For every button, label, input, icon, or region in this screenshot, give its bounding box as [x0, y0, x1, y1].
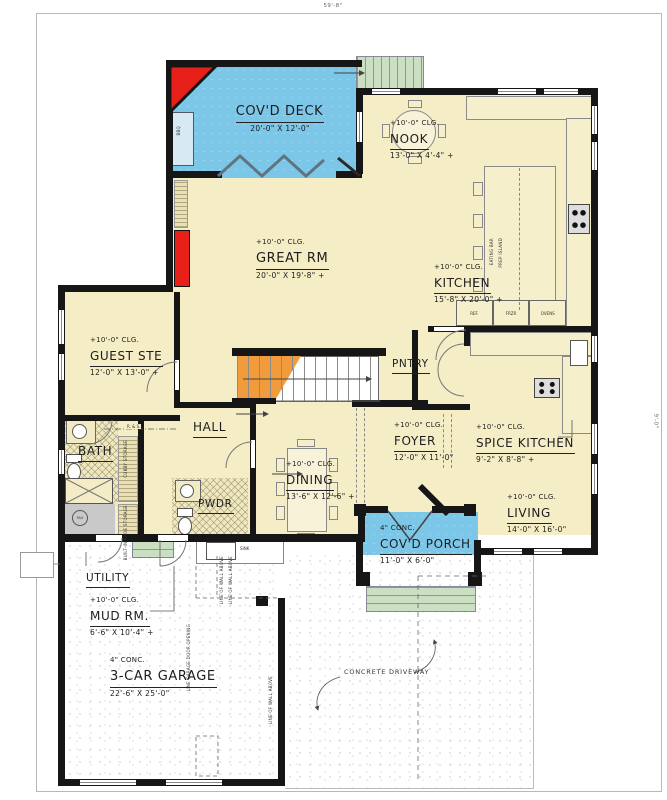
wall [174, 292, 180, 408]
window [498, 89, 536, 94]
cubby-storage-label: CUBBY STORAGE [123, 440, 128, 478]
ovens-label: OVENS [529, 300, 566, 326]
room-label-pwdr: PWDR [198, 492, 234, 514]
garage-door-opening [80, 780, 136, 785]
shower-icon [65, 478, 113, 504]
room-label-kitchen: +10'-0" CLG. KITCHEN 15'-8" X 20'-0" + [434, 263, 503, 304]
toilet-icon [178, 517, 192, 535]
window [592, 106, 597, 134]
wall [58, 415, 180, 421]
room-label-great-rm: +10'-0" CLG. GREAT RM 20'-0" X 19'-8" + [256, 238, 329, 281]
rod-shelf-label: R. & S. [126, 424, 141, 429]
wall [474, 540, 481, 586]
wall [356, 540, 363, 586]
porch-pier [354, 504, 366, 516]
wall [278, 598, 285, 785]
room-label-spice-kitchen: +10'-0" CLG. SPICE KITCHEN 9'-2" X 8'-8"… [476, 423, 575, 464]
porch-pier [464, 504, 476, 516]
wall [352, 400, 428, 407]
window [494, 549, 522, 554]
room-label-mud-rm: +10'-0" CLG. MUD RM. 6'-6" X 10'-4" + [90, 596, 154, 637]
fau-icon: FAU [72, 510, 88, 526]
floor-plan: 59'-8" 9'-0" [0, 0, 667, 800]
door-gap [158, 535, 188, 541]
wall [166, 171, 173, 292]
toilet-tank [177, 508, 193, 517]
wall [232, 348, 386, 356]
shoe-storage [118, 504, 138, 536]
wall [166, 60, 362, 67]
room-label-living: +10'-0" CLG. LIVING 14'-0" X 16'-0" [507, 493, 566, 534]
garage-door-opening [166, 780, 222, 785]
wall [250, 402, 256, 538]
wall [232, 398, 276, 404]
wall [366, 506, 388, 513]
room-label-dining: +10'-0" CLG. DINING 13'-6" X 12'-6" + [286, 460, 355, 501]
fireplace-icon [174, 230, 190, 287]
porch-steps [366, 586, 476, 612]
door-gap [175, 360, 179, 390]
driveway-label: CONCRETE DRIVEWAY [344, 668, 429, 676]
window [592, 424, 597, 454]
wall [58, 538, 65, 786]
window [544, 89, 578, 94]
line-of-wall-above-label: LINE OF WALL ABOVE [219, 556, 224, 604]
cubby-storage [118, 436, 138, 502]
room-label-nook: +10'-0" CLG. NOOK 13'-0" X 4'-4" + [390, 119, 454, 160]
window [59, 310, 64, 344]
room-label-foyer: +10'-0" CLG. FOYER 12'-0" X 11'-0" [394, 421, 453, 462]
wall [166, 171, 222, 178]
door-gap [251, 440, 255, 468]
island-centerline [519, 168, 520, 310]
window [59, 354, 64, 380]
room-label-pntry: PNTRY [392, 352, 430, 374]
wall [58, 285, 173, 292]
room-label-hall: HALL [193, 416, 227, 438]
room-label-utility: UTILITY [86, 566, 130, 588]
column-line [364, 408, 365, 508]
eating-bar-label: EATING BAR [489, 238, 494, 265]
top-dimension: 59'-8" [300, 3, 366, 9]
mud-bench [132, 540, 174, 558]
window [534, 549, 562, 554]
wall-post [256, 596, 268, 606]
door-gap [434, 327, 464, 331]
downspout-box [20, 552, 54, 578]
window [592, 142, 597, 170]
shoe-storage-label: BUILT-IN SHOE STORAGE [123, 505, 128, 560]
room-label-bath: BATH [78, 440, 113, 462]
cooktop-icon [534, 378, 560, 398]
sink-label: SINK [240, 546, 249, 551]
window [357, 112, 362, 142]
wall [432, 506, 466, 513]
cooktop-icon [568, 204, 590, 234]
kitchen-counter [466, 96, 592, 120]
room-label-covd-deck: COV'D DECK 20'-0" X 12'-0" [220, 100, 340, 134]
line-of-wall-above-label: LINE OF WALL ABOVE [268, 676, 273, 724]
window [59, 450, 64, 474]
wall [138, 420, 144, 538]
wall [166, 60, 173, 178]
right-dimension: 9'-0" [653, 413, 659, 428]
window [592, 336, 597, 362]
bbq-label: BBQ [176, 126, 181, 136]
column-line [356, 408, 357, 508]
sink-icon [180, 484, 194, 498]
sink-icon [570, 340, 588, 366]
sink-icon [72, 424, 87, 439]
built-in-shelves [174, 180, 188, 228]
door-gap [372, 89, 400, 94]
room-label-covd-porch: 4" CONC. COV'D PORCH 11'-0" X 6'-0" [380, 524, 472, 565]
room-label-garage: 4" CONC. 3-CAR GARAGE 22'-6" X 25'-0" [110, 656, 217, 699]
line-of-wall-above-label: LINE OF WALL ABOVE [228, 556, 233, 604]
room-label-guest-ste: +10'-0" CLG. GUEST STE 12'-0" X 13'-0" + [90, 336, 163, 377]
window [592, 464, 597, 494]
wall [464, 330, 470, 346]
door-gap [96, 535, 122, 541]
